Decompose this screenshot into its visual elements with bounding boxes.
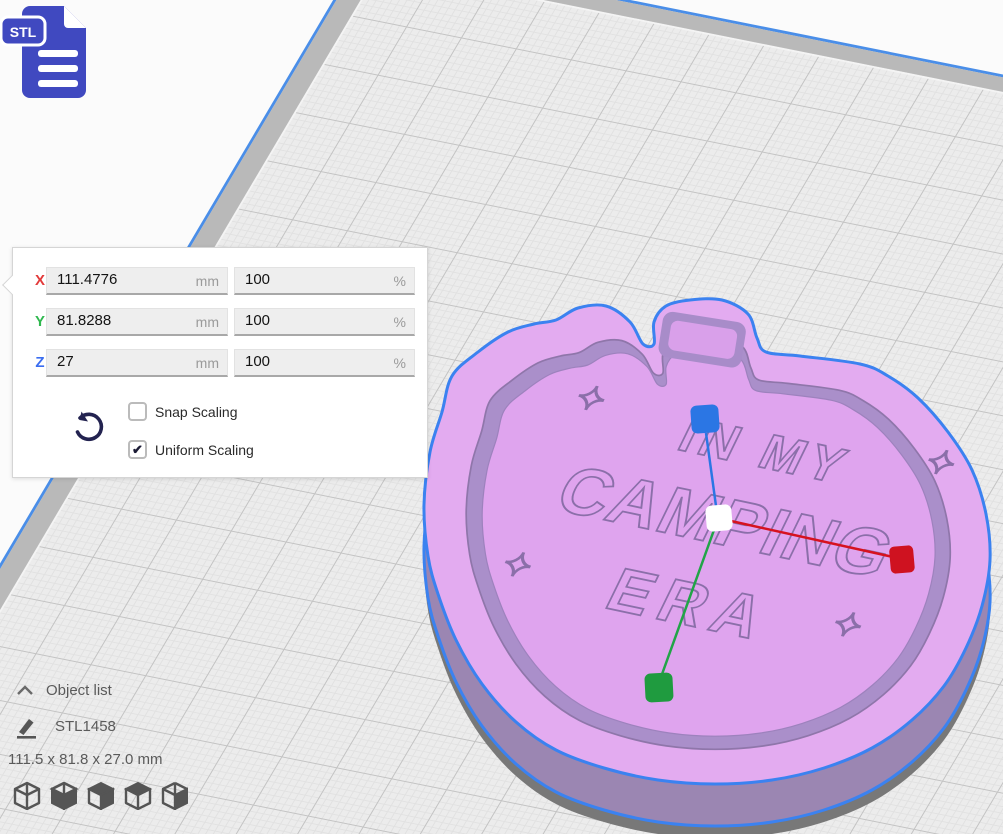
stl-badge-label: STL <box>10 24 37 40</box>
scale-row-x: X mm % <box>13 267 427 295</box>
z-size-input[interactable] <box>47 350 227 375</box>
gizmo-z-handle[interactable] <box>690 404 720 434</box>
front-view-cube-icon <box>49 780 79 810</box>
document-fold <box>64 6 86 28</box>
object-list-header[interactable]: Object list <box>46 682 112 699</box>
top-view-cube-icon <box>86 780 116 810</box>
y-size-input[interactable] <box>47 309 227 334</box>
view-3d-button[interactable] <box>12 780 42 810</box>
view-front-button[interactable] <box>49 780 79 810</box>
gizmo-center-handle[interactable] <box>705 504 733 532</box>
view-right-button[interactable] <box>160 780 190 810</box>
z-percent-input[interactable] <box>235 350 414 375</box>
x-percent-input[interactable] <box>235 268 414 293</box>
gizmo-y-handle[interactable] <box>644 672 673 702</box>
x-size-input[interactable] <box>47 268 227 293</box>
3d-view-cube-icon <box>12 780 42 810</box>
object-list-panel: Object list STL1458 111.5 x 81.8 x 27.0 … <box>0 674 260 834</box>
y-percent-input[interactable] <box>235 309 414 334</box>
scale-row-z: Z mm % <box>13 349 427 377</box>
view-top-button[interactable] <box>86 780 116 810</box>
snap-scaling-label: Snap Scaling <box>155 404 238 420</box>
left-view-cube-icon <box>123 780 153 810</box>
view-left-button[interactable] <box>123 780 153 810</box>
object-list-item-name[interactable]: STL1458 <box>55 718 116 735</box>
uniform-scaling-label: Uniform Scaling <box>155 442 254 458</box>
gizmo-x-handle[interactable] <box>889 545 915 574</box>
collapse-caret-icon[interactable] <box>16 684 34 696</box>
uniform-scaling-checkbox[interactable]: ✔ <box>128 440 147 459</box>
reset-scale-button[interactable] <box>69 408 109 450</box>
scale-tool-panel: X mm % Y mm % Z mm % <box>12 247 428 478</box>
camera-view-toolbar <box>12 780 202 814</box>
model-dimensions-readout: 111.5 x 81.8 x 27.0 mm <box>8 751 163 768</box>
stl-file-icon[interactable]: STL <box>0 4 92 98</box>
right-view-cube-icon <box>160 780 190 810</box>
edit-pencil-icon[interactable] <box>13 714 39 740</box>
scale-row-y: Y mm % <box>13 308 427 336</box>
snap-scaling-checkbox[interactable] <box>128 402 147 421</box>
reset-arrow-icon <box>72 410 106 446</box>
